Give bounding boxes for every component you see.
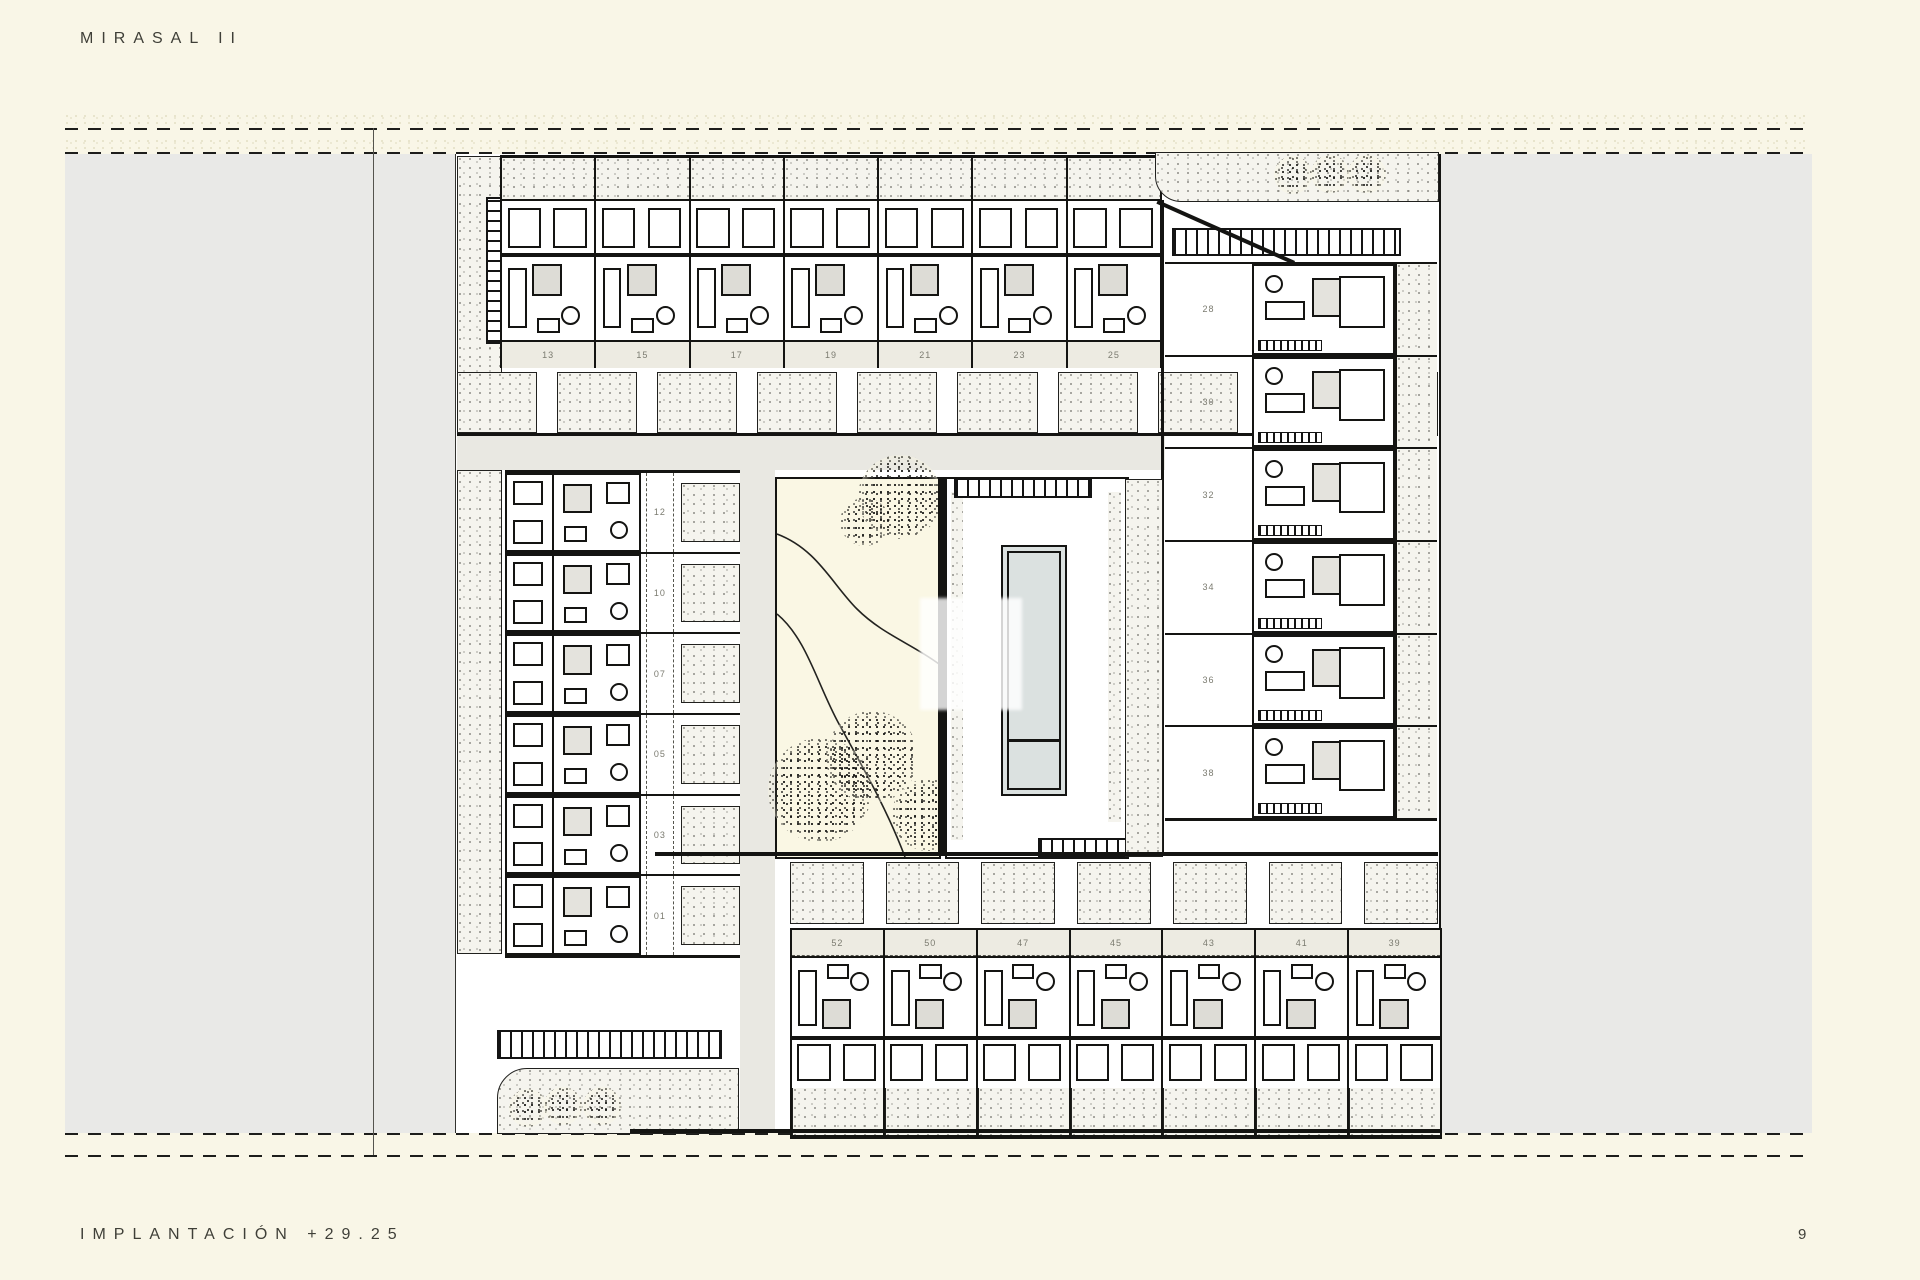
bed [885,208,919,248]
bathroom [606,805,630,827]
unit-number-band: 41 [1256,930,1347,956]
window-box [513,842,543,866]
unit-floorplan [691,201,783,342]
sofa [564,768,587,784]
window-box [513,520,543,544]
unit-number: 13 [542,350,554,360]
wardrobe [980,268,999,328]
table [1265,553,1283,571]
unit-floorplan [1068,201,1160,342]
unit-number-band: 32 [1165,449,1252,540]
unit-floorplan [596,201,688,342]
unit-floorplan [1252,449,1395,540]
unit-number: 03 [654,830,666,840]
bathroom [721,264,751,296]
bed [696,208,730,248]
unit-floorplan [792,956,883,1088]
bed [1307,1044,1340,1082]
window-box [513,923,543,947]
deck-ramp-north [954,478,1092,498]
unit-garden [1163,1088,1254,1135]
bed [979,208,1013,248]
wardrobe [508,268,527,328]
wall [1349,1036,1440,1040]
window-box [513,723,543,747]
wardrobe [1356,970,1375,1026]
bed [1262,1044,1295,1082]
unit-floorplan [554,796,640,875]
unit-floorplan [1252,635,1395,726]
bathroom [606,724,630,746]
table [656,306,675,325]
tree [509,1089,547,1127]
bathroom [627,264,657,296]
unit-cell: 45 [1069,930,1162,1135]
unit-number-band: 05 [646,715,675,794]
unit-cell: 38 [1165,727,1437,818]
unit-floorplan [1163,956,1254,1088]
unit-number-band: 43 [1163,930,1254,956]
unit-number-band: 03 [646,796,675,875]
unit-number: 45 [1110,938,1122,948]
bathroom [606,563,630,585]
bed [1119,208,1153,248]
bed [1073,208,1107,248]
unit-number: 34 [1202,582,1214,592]
unit-floorplan [554,554,640,633]
sofa [564,930,587,946]
sofa [1265,393,1305,413]
bed [1339,276,1385,328]
sofa [820,318,842,333]
garden-row-above-bottom-units [790,862,1438,924]
unit-number: 07 [654,669,666,679]
bed [553,208,587,248]
boundary-dashed-line-top-1 [65,128,1812,130]
kitchen [563,726,592,755]
unit-number: 52 [831,938,843,948]
wardrobe [1074,268,1093,328]
sofa [919,965,941,979]
wardrobe [791,268,810,328]
unit-cell: 43 [1161,930,1254,1135]
sofa [1103,318,1125,333]
table [1265,738,1283,756]
sofa [537,318,559,333]
unit-cell: 17 [689,158,783,368]
window-box [513,804,543,828]
unit-cell: 32 [1165,449,1437,542]
table [844,306,863,325]
unit-number: 15 [636,350,648,360]
sofa [1198,965,1220,979]
sofa [1265,671,1305,691]
unit-terrace [505,796,554,875]
sofa [1105,965,1127,979]
unit-number-band: 47 [978,930,1069,956]
unit-number: 21 [919,350,931,360]
unit-floorplan [973,201,1065,342]
unit-number: 23 [1014,350,1026,360]
unit-number: 30 [1202,397,1214,407]
bed [1339,554,1385,606]
wardrobe [1170,970,1189,1026]
bed [602,208,636,248]
table [610,925,628,943]
wardrobe [891,970,910,1026]
unit-garden [1395,727,1437,818]
unit-floorplan [554,473,640,552]
unit-cell: 13 [500,158,594,368]
unit-garden [681,725,740,784]
unit-terrace [505,715,554,794]
ramp-hatch-southwest [497,1030,722,1059]
unit-garden [1349,1088,1440,1135]
unit-number-band: 19 [785,342,877,368]
unit-number: 43 [1203,938,1215,948]
plan-south-edge [630,1129,1441,1133]
tree [544,1087,582,1125]
unit-garden [973,158,1065,201]
kitchen [563,484,592,513]
unit-number: 01 [654,911,666,921]
sofa [1265,486,1305,506]
unit-garden [792,1088,883,1135]
unit-number-band: 36 [1165,635,1252,726]
bed [931,208,965,248]
unit-cell: 05 [505,715,740,796]
wall [1068,253,1160,257]
unit-terrace [505,554,554,633]
unit-garden [978,1088,1069,1135]
unit-number-band: 23 [973,342,1065,368]
sofa [1291,965,1313,979]
bed [1400,1044,1433,1082]
unit-number: 36 [1202,675,1214,685]
bed [1076,1044,1109,1082]
wall [978,1036,1069,1040]
table [1265,367,1283,385]
kitchen [563,565,592,594]
unit-cell: 50 [883,930,976,1135]
sofa [1012,965,1034,979]
unit-terrace [505,876,554,955]
stair-hatch [1258,803,1322,814]
unit-number-band: 07 [646,634,675,713]
top-unit-row: 13 15 [500,155,1162,368]
table [939,306,958,325]
unit-number: 47 [1017,938,1029,948]
bathroom [606,886,630,908]
table [943,972,962,991]
table [610,683,628,701]
window-box [513,642,543,666]
unit-number: 12 [654,507,666,517]
tree [583,1087,621,1125]
unit-number-band: 30 [1165,357,1252,448]
left-unit-column: 12 10 [505,470,740,958]
unit-floorplan [1252,357,1395,448]
road-band-north [457,435,1165,470]
unit-garden [1395,542,1437,633]
bed [1339,740,1385,792]
wardrobe [1263,970,1282,1026]
unit-floorplan [1252,264,1395,355]
unit-garden [1395,449,1437,540]
unit-cell: 52 [790,930,883,1135]
bed [1339,462,1385,514]
unit-garden [1395,635,1437,726]
tree [1348,155,1386,193]
unit-floorplan [502,201,594,342]
stair-hatch [1258,710,1322,721]
unit-cell: 36 [1165,635,1437,728]
margin-block-left [65,154,455,1133]
bathroom [1004,264,1034,296]
bathroom [606,482,630,504]
sofa [1008,318,1030,333]
table [1127,306,1146,325]
unit-number: 38 [1202,768,1214,778]
bed [1214,1044,1247,1082]
sofa [914,318,936,333]
unit-number-band: 17 [691,342,783,368]
speckle-band [65,114,1812,125]
bathroom [1008,1000,1037,1030]
bathroom [915,1000,944,1030]
unit-number-band: 28 [1165,264,1252,355]
unit-number: 39 [1389,938,1401,948]
unit-number-band: 34 [1165,542,1252,633]
wall [1163,1036,1254,1040]
bed [1028,1044,1061,1082]
unit-cell: 19 [783,158,877,368]
table [610,763,628,781]
unit-floorplan [885,956,976,1088]
stair-hatch [1258,340,1322,351]
wall [596,253,688,257]
sofa [827,965,849,979]
unit-number-band: 50 [885,930,976,956]
unit-garden [691,158,783,201]
table [1033,306,1052,325]
property-line-left [373,128,374,1155]
bottom-unit-row: 52 50 [790,928,1442,1139]
unit-floorplan [1349,956,1440,1088]
sofa [564,849,587,865]
planting-strip-east-of-deck [1125,479,1163,857]
unit-number: 25 [1108,350,1120,360]
wardrobe [1077,970,1096,1026]
table [1265,645,1283,663]
bathroom [1286,1000,1315,1030]
wall [502,253,594,257]
unit-cell: 10 [505,554,740,635]
unit-number: 50 [924,938,936,948]
unit-floorplan [978,956,1069,1088]
window-box [513,762,543,786]
bed [1339,369,1385,421]
unit-cell: 30 [1165,357,1437,450]
bed [890,1044,923,1082]
unit-number-band: 13 [502,342,594,368]
table [1265,275,1283,293]
wall [885,1036,976,1040]
wall [691,253,783,257]
table [1129,972,1148,991]
unit-number-band: 10 [646,554,675,633]
wall [973,253,1065,257]
unit-cell: 01 [505,876,740,955]
unit-number: 05 [654,749,666,759]
unit-garden [879,158,971,201]
unit-cell: 25 [1066,158,1160,368]
wall [792,1036,883,1040]
sofa [564,526,587,542]
table [1036,972,1055,991]
unit-number-band: 39 [1349,930,1440,956]
sofa [1384,965,1406,979]
unit-number: 32 [1202,490,1214,500]
wardrobe [984,970,1003,1026]
table [1315,972,1334,991]
page-title: MIRASAL II [80,30,243,48]
kitchen [563,887,592,916]
sofa [1265,579,1305,599]
window-box [513,884,543,908]
unit-cell: 41 [1254,930,1347,1135]
planting-strip-west-lower [457,470,502,954]
unit-garden [785,158,877,201]
wall [879,253,971,257]
unit-floorplan [785,201,877,342]
table [1222,972,1241,991]
bed [790,208,824,248]
watermark [920,598,1022,710]
unit-garden [1071,1088,1162,1135]
bathroom [1098,264,1128,296]
sofa [564,688,587,704]
window-box [513,481,543,505]
ramp-hatch-northeast [1172,228,1401,256]
stair-hatch [1258,432,1322,443]
unit-garden [1395,357,1437,448]
bed [836,208,870,248]
bathroom [815,264,845,296]
bed [1355,1044,1388,1082]
unit-cell: 21 [877,158,971,368]
unit-cell: 07 [505,634,740,715]
bathroom [606,644,630,666]
unit-cell: 03 [505,796,740,877]
bathroom [532,264,562,296]
sofa [726,318,748,333]
bed [648,208,682,248]
table [610,844,628,862]
unit-number-band: 52 [792,930,883,956]
unit-number: 41 [1296,938,1308,948]
unit-floorplan [1256,956,1347,1088]
unit-number: 28 [1202,304,1214,314]
table [1407,972,1426,991]
bed [742,208,776,248]
unit-floorplan [554,876,640,955]
table [750,306,769,325]
sofa [1265,764,1305,784]
window-box [513,600,543,624]
unit-number-band: 12 [646,473,675,552]
bed [983,1044,1016,1082]
kitchen [563,807,592,836]
page-number: 9 [1798,1226,1806,1243]
unit-garden [502,158,594,201]
bathroom [910,264,940,296]
unit-garden [596,158,688,201]
stair-hatch [1258,525,1322,536]
wall [1071,1036,1162,1040]
unit-floorplan [1252,727,1395,818]
unit-floorplan [879,201,971,342]
sofa [564,607,587,623]
wardrobe [798,970,817,1026]
unit-floorplan [1252,542,1395,633]
bed [843,1044,876,1082]
drawing-title: IMPLANTACIÓN +29.25 [80,1226,405,1244]
courtyard-south-wall [655,852,1438,856]
kitchen [563,645,592,674]
page: { "page": { "title": "MIRASAL II", "foot… [0,0,1920,1280]
unit-number-band: 38 [1165,727,1252,818]
bathroom [1101,1000,1130,1030]
sofa [1265,301,1305,321]
wall [1256,1036,1347,1040]
unit-garden [681,483,740,542]
unit-number-band: 01 [646,876,675,955]
unit-number: 19 [825,350,837,360]
unit-floorplan [1071,956,1162,1088]
unit-cell: 28 [1165,264,1437,357]
window-box [513,562,543,586]
wardrobe [886,268,905,328]
bed [508,208,542,248]
boundary-dashed-line-bottom-2 [65,1155,1812,1157]
unit-cell: 12 [505,473,740,554]
unit-garden [681,564,740,623]
speckle-band [65,139,1812,150]
unit-terrace [505,634,554,713]
unit-terrace [505,473,554,552]
bed [797,1044,830,1082]
margin-block-right [1438,154,1812,1133]
window-box [513,681,543,705]
bed [1121,1044,1154,1082]
wardrobe [603,268,622,328]
pool-steps [1007,739,1061,790]
unit-garden [1068,158,1160,201]
table [850,972,869,991]
unit-cell: 47 [976,930,1069,1135]
unit-number: 17 [731,350,743,360]
bathroom [1379,1000,1408,1030]
unit-cell: 39 [1347,930,1440,1135]
tree [858,455,942,539]
table [561,306,580,325]
unit-number-band: 21 [879,342,971,368]
tree [1311,155,1349,193]
wardrobe [697,268,716,328]
right-unit-column: 28 30 32 [1165,262,1437,821]
wall [785,253,877,257]
